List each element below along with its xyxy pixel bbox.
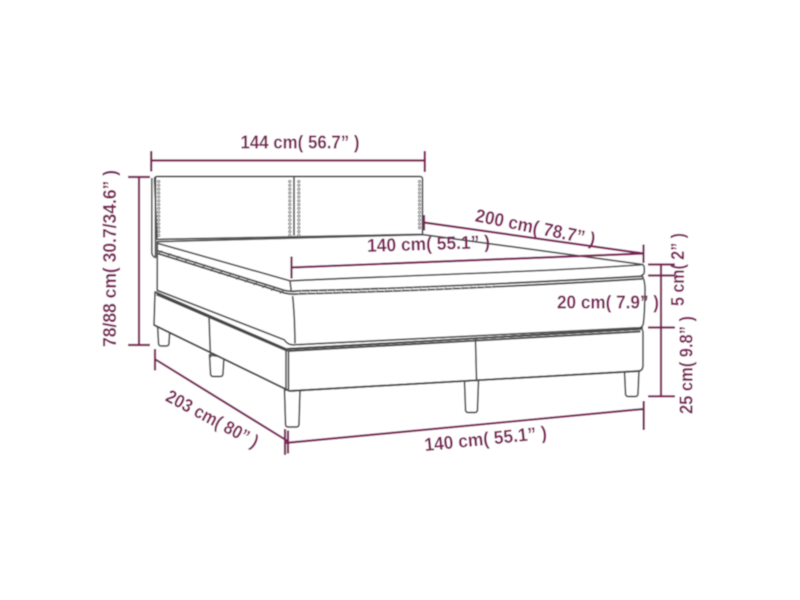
svg-text:20 cm( 7.9” ): 20 cm( 7.9” ) <box>557 292 659 313</box>
svg-text:140 cm( 55.1” ): 140 cm( 55.1” ) <box>367 231 491 256</box>
svg-text:25 cm( 9.8” ): 25 cm( 9.8” ) <box>676 316 697 414</box>
svg-text:5 cm( 2” ): 5 cm( 2” ) <box>667 233 688 306</box>
svg-text:78/88 cm( 30.7/34.6” ): 78/88 cm( 30.7/34.6” ) <box>99 170 120 347</box>
svg-text:144 cm( 56.7” ): 144 cm( 56.7” ) <box>241 131 360 152</box>
